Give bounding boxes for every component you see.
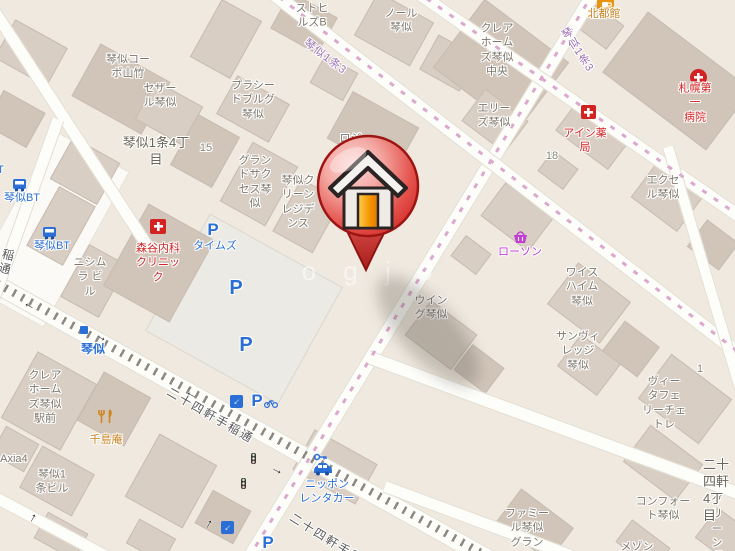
building-label: 琴似1 条ビル <box>36 468 69 497</box>
traffic-light-icon <box>251 453 256 464</box>
poi-label-moriya-clinic[interactable]: 森谷内科 クリニッ ク <box>136 242 180 285</box>
building-label: メゾン <box>621 540 654 551</box>
rentacar-car-icon[interactable] <box>312 461 333 476</box>
parking-p-mark[interactable]: P <box>262 532 273 551</box>
poi-label-ain-pharmacy[interactable]: アイン薬 局 <box>563 127 606 156</box>
building <box>0 90 46 148</box>
building-label: プラシー ドブルグ 琴似 <box>231 79 275 122</box>
area-label-kotoni-1jo-4chome: 琴似1条4丁 目 <box>123 135 189 169</box>
building-label: ワイス ハイム 琴似 <box>566 266 599 309</box>
building-label: グラン ドサク セス琴 似 <box>239 153 272 210</box>
parking-p-mark[interactable]: P <box>239 332 252 358</box>
poi-label-hokuto-kan[interactable]: 北都館 <box>588 7 621 21</box>
poi-label-chishima-an[interactable]: 千島庵 <box>90 433 123 447</box>
poi-label-times-parking[interactable]: タイムズ <box>193 239 237 253</box>
subway-entrance-icon[interactable]: → <box>221 521 234 534</box>
building-label: ファミー ル琴似 グラン <box>505 507 549 550</box>
poi-label-kotoni-bt[interactable]: 琴似BT <box>4 191 40 205</box>
poi-label-kotoni-bt[interactable]: 琴似BT <box>0 163 4 177</box>
building-label: サンヴィ レッジ 琴似 <box>556 330 600 373</box>
building-label: エクセ ル琴似 <box>647 174 680 203</box>
building-label: クレア ホーム ズ琴似 駅前 <box>29 368 62 425</box>
house-pin-graphic <box>302 130 434 276</box>
road-label-teine-street: 二十四軒手稲通 <box>286 510 377 551</box>
shopping-basket-icon[interactable] <box>512 229 529 245</box>
poi-label-nippon-rentacar[interactable]: ニッポン レンタカー <box>300 478 355 507</box>
building-label: aAxia4 <box>0 452 28 466</box>
subway-marker-icon <box>80 326 88 334</box>
house-map-pin[interactable] <box>302 130 434 276</box>
subway-entrance-icon[interactable]: → <box>230 395 243 408</box>
bicycle-icon[interactable] <box>264 399 278 408</box>
poi-label-kotoni-bt[interactable]: 琴似BT <box>34 239 70 253</box>
building <box>450 235 491 275</box>
one-way-arrow-icon: → <box>269 459 288 478</box>
block-number: 1 <box>697 362 703 376</box>
area-label-nijuyonken-4chome: 二十四軒 4丁目 <box>703 457 735 525</box>
building-label: コンフォー ト琴似 <box>636 495 691 524</box>
parking-p-mark[interactable]: P <box>229 275 242 301</box>
building-label: エリー ズ琴似 <box>478 102 511 131</box>
poi-label-kotoni-station[interactable]: 琴似 <box>81 342 105 358</box>
building <box>190 0 262 79</box>
parking-p-mark[interactable]: P <box>207 219 218 241</box>
pharmacy-icon[interactable] <box>581 105 596 119</box>
building-label: クレア ホーム ズ琴似 中央 <box>481 21 514 78</box>
traffic-light-icon <box>241 478 246 489</box>
building <box>126 519 176 551</box>
clinic-icon[interactable] <box>150 219 166 234</box>
poi-label-sapporo-daiichi-hospital[interactable]: 札幌第一 病院 <box>675 82 715 125</box>
building-label: 琴似コー ポ山竹 <box>106 53 150 82</box>
map-canvas[interactable]: → → → → → → → → P P P P P 琴似コー ポ山竹 セザー ル… <box>0 0 735 551</box>
building-label: セザー ル琴似 <box>144 82 177 111</box>
poi-label-lawson[interactable]: ローソン <box>498 245 542 259</box>
building-label: ノール 琴似 <box>385 7 418 36</box>
block-number: 18 <box>546 149 558 163</box>
rentacar-key-icon[interactable] <box>314 453 327 461</box>
building-label: ヴィー タフェ リーチェ トレ <box>642 374 686 431</box>
block-number: 15 <box>200 141 212 155</box>
parking-p-mark[interactable]: P <box>251 390 262 412</box>
restaurant-icon[interactable] <box>97 409 114 424</box>
building-label: ストヒ ルズB <box>296 2 329 31</box>
building-label: ニシム ラ ビ ル <box>74 256 107 299</box>
